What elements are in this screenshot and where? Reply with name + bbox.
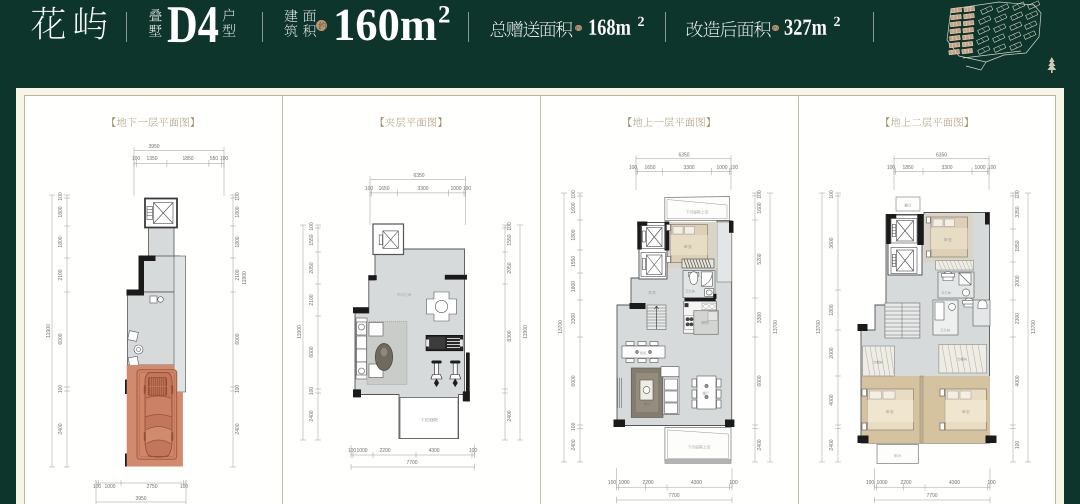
svg-text:13700: 13700	[773, 320, 779, 334]
svg-text:1800: 1800	[235, 206, 241, 217]
svg-text:7700: 7700	[926, 493, 937, 499]
svg-text:100: 100	[987, 480, 996, 486]
svg-text:100: 100	[309, 387, 315, 396]
svg-text:100: 100	[235, 192, 241, 201]
svg-text:1000: 1000	[618, 480, 629, 486]
svg-text:1600: 1600	[757, 202, 763, 213]
svg-text:2750: 2750	[146, 484, 157, 490]
svg-text:3300: 3300	[571, 313, 577, 324]
svg-text:4300: 4300	[949, 480, 960, 486]
svg-text:2200: 2200	[642, 480, 653, 486]
svg-text:2400: 2400	[571, 439, 577, 450]
svg-text:1550: 1550	[571, 256, 577, 267]
svg-text:6350: 6350	[936, 153, 947, 159]
svg-text:2000: 2000	[829, 347, 835, 358]
svg-text:11900: 11900	[297, 325, 303, 339]
svg-text:13700: 13700	[816, 320, 822, 334]
svg-text:1000: 1000	[104, 484, 115, 490]
svg-text:2400: 2400	[507, 410, 513, 421]
svg-text:100: 100	[1015, 441, 1021, 450]
svg-text:11900: 11900	[46, 324, 52, 338]
svg-text:100: 100	[469, 448, 478, 454]
svg-text:3950: 3950	[148, 144, 159, 150]
svg-text:1650: 1650	[378, 186, 389, 192]
svg-text:1600: 1600	[571, 202, 577, 213]
svg-text:6000: 6000	[571, 375, 577, 386]
svg-text:1350: 1350	[146, 156, 157, 162]
svg-text:8300: 8300	[507, 330, 513, 341]
svg-text:7700: 7700	[668, 493, 679, 499]
svg-text:100: 100	[309, 222, 315, 231]
svg-text:1800: 1800	[235, 236, 241, 247]
svg-text:4000: 4000	[1015, 375, 1021, 386]
svg-text:2200: 2200	[379, 448, 390, 454]
svg-text:6000: 6000	[309, 346, 315, 357]
svg-text:5200: 5200	[757, 253, 763, 264]
svg-text:1550: 1550	[309, 234, 315, 245]
svg-text:2100: 2100	[58, 269, 64, 280]
svg-text:6350: 6350	[678, 153, 689, 159]
svg-text:1650: 1650	[644, 165, 655, 171]
svg-text:4300: 4300	[428, 448, 439, 454]
svg-text:3300: 3300	[757, 312, 763, 323]
svg-text:100: 100	[757, 190, 763, 199]
svg-text:1800: 1800	[58, 236, 64, 247]
svg-text:11900: 11900	[523, 325, 529, 339]
svg-text:3350: 3350	[1015, 206, 1021, 217]
svg-text:1800: 1800	[829, 304, 835, 315]
svg-text:1550: 1550	[507, 234, 513, 245]
svg-text:1800: 1800	[58, 206, 64, 217]
svg-text:2000: 2000	[1015, 275, 1021, 286]
svg-text:3300: 3300	[941, 165, 952, 171]
svg-text:2050: 2050	[309, 262, 315, 273]
svg-text:100: 100	[571, 422, 577, 431]
svg-text:6000: 6000	[757, 375, 763, 386]
svg-text:100: 100	[365, 186, 374, 192]
svg-text:3950: 3950	[135, 496, 146, 502]
svg-text:550: 550	[210, 156, 219, 162]
svg-text:1850: 1850	[1015, 240, 1021, 251]
svg-text:2200: 2200	[900, 480, 911, 486]
svg-text:1000: 1000	[356, 448, 367, 454]
svg-text:1000: 1000	[974, 165, 985, 171]
svg-text:13700: 13700	[1031, 320, 1037, 334]
svg-text:6350: 6350	[413, 173, 424, 179]
svg-text:2400: 2400	[757, 439, 763, 450]
svg-text:4000: 4000	[829, 394, 835, 405]
svg-text:100: 100	[348, 448, 357, 454]
svg-text:6000: 6000	[235, 333, 241, 344]
svg-text:100: 100	[507, 222, 513, 231]
svg-text:2400: 2400	[309, 410, 315, 421]
svg-text:3300: 3300	[417, 186, 428, 192]
svg-text:100: 100	[180, 484, 189, 490]
svg-text:1000: 1000	[716, 165, 727, 171]
svg-text:1800: 1800	[571, 229, 577, 240]
svg-text:2400: 2400	[58, 423, 64, 434]
svg-text:3600: 3600	[829, 237, 835, 248]
svg-text:100: 100	[829, 190, 835, 199]
svg-text:3300: 3300	[683, 165, 694, 171]
svg-text:100: 100	[571, 190, 577, 199]
svg-text:100: 100	[608, 480, 617, 486]
svg-text:4300: 4300	[691, 480, 702, 486]
svg-text:100: 100	[58, 385, 64, 394]
svg-text:7700: 7700	[406, 460, 417, 466]
svg-text:100: 100	[729, 480, 738, 486]
svg-text:6000: 6000	[58, 333, 64, 344]
svg-text:11900: 11900	[242, 271, 248, 285]
svg-text:2100: 2100	[309, 294, 315, 305]
svg-text:100: 100	[235, 385, 241, 394]
svg-text:1850: 1850	[902, 165, 913, 171]
svg-text:1800: 1800	[571, 281, 577, 292]
svg-text:2050: 2050	[507, 262, 513, 273]
svg-text:2300: 2300	[1015, 313, 1021, 324]
svg-text:1000: 1000	[450, 186, 461, 192]
svg-text:100: 100	[1015, 190, 1021, 199]
svg-text:2100: 2100	[235, 269, 241, 280]
svg-text:100: 100	[58, 192, 64, 201]
svg-text:100: 100	[93, 484, 102, 490]
svg-text:1000: 1000	[876, 480, 887, 486]
svg-text:2400: 2400	[235, 423, 241, 434]
svg-text:1850: 1850	[182, 156, 193, 162]
svg-text:13700: 13700	[558, 320, 564, 334]
svg-text:100: 100	[866, 480, 875, 486]
svg-text:2400: 2400	[829, 439, 835, 450]
